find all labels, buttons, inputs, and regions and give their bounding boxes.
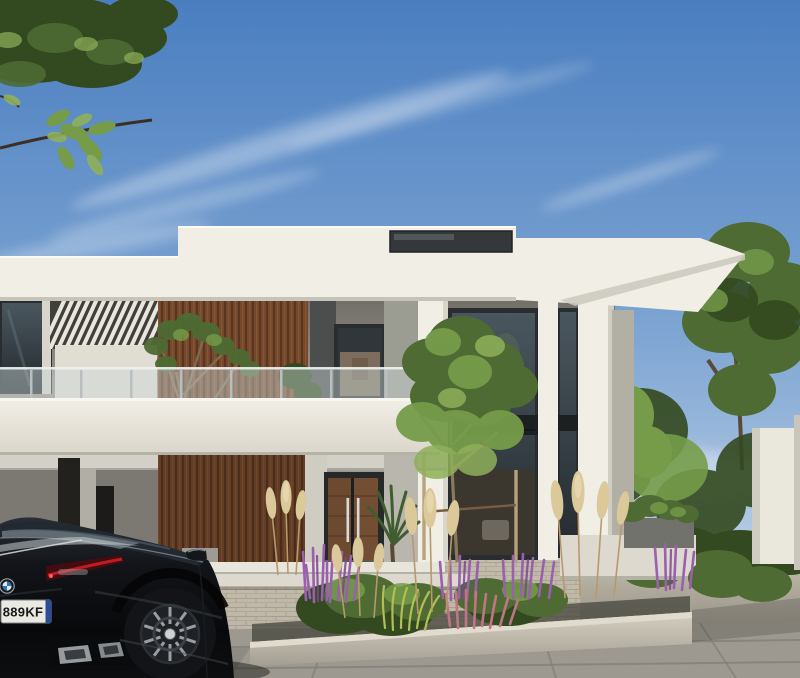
side-mirror bbox=[186, 549, 207, 561]
bmw-roundel-icon bbox=[0, 579, 14, 593]
clerestory-window bbox=[390, 231, 512, 252]
rendering-canvas: 889KF bbox=[0, 0, 800, 678]
plate-number: 889KF bbox=[3, 605, 44, 620]
narrow-window-strip bbox=[556, 308, 580, 558]
balcony-slab bbox=[0, 398, 447, 456]
license-plate: 889KF bbox=[1, 600, 51, 623]
glass-balcony-railing bbox=[0, 367, 447, 400]
garden-wall bbox=[752, 415, 800, 570]
model-badge bbox=[58, 569, 88, 575]
